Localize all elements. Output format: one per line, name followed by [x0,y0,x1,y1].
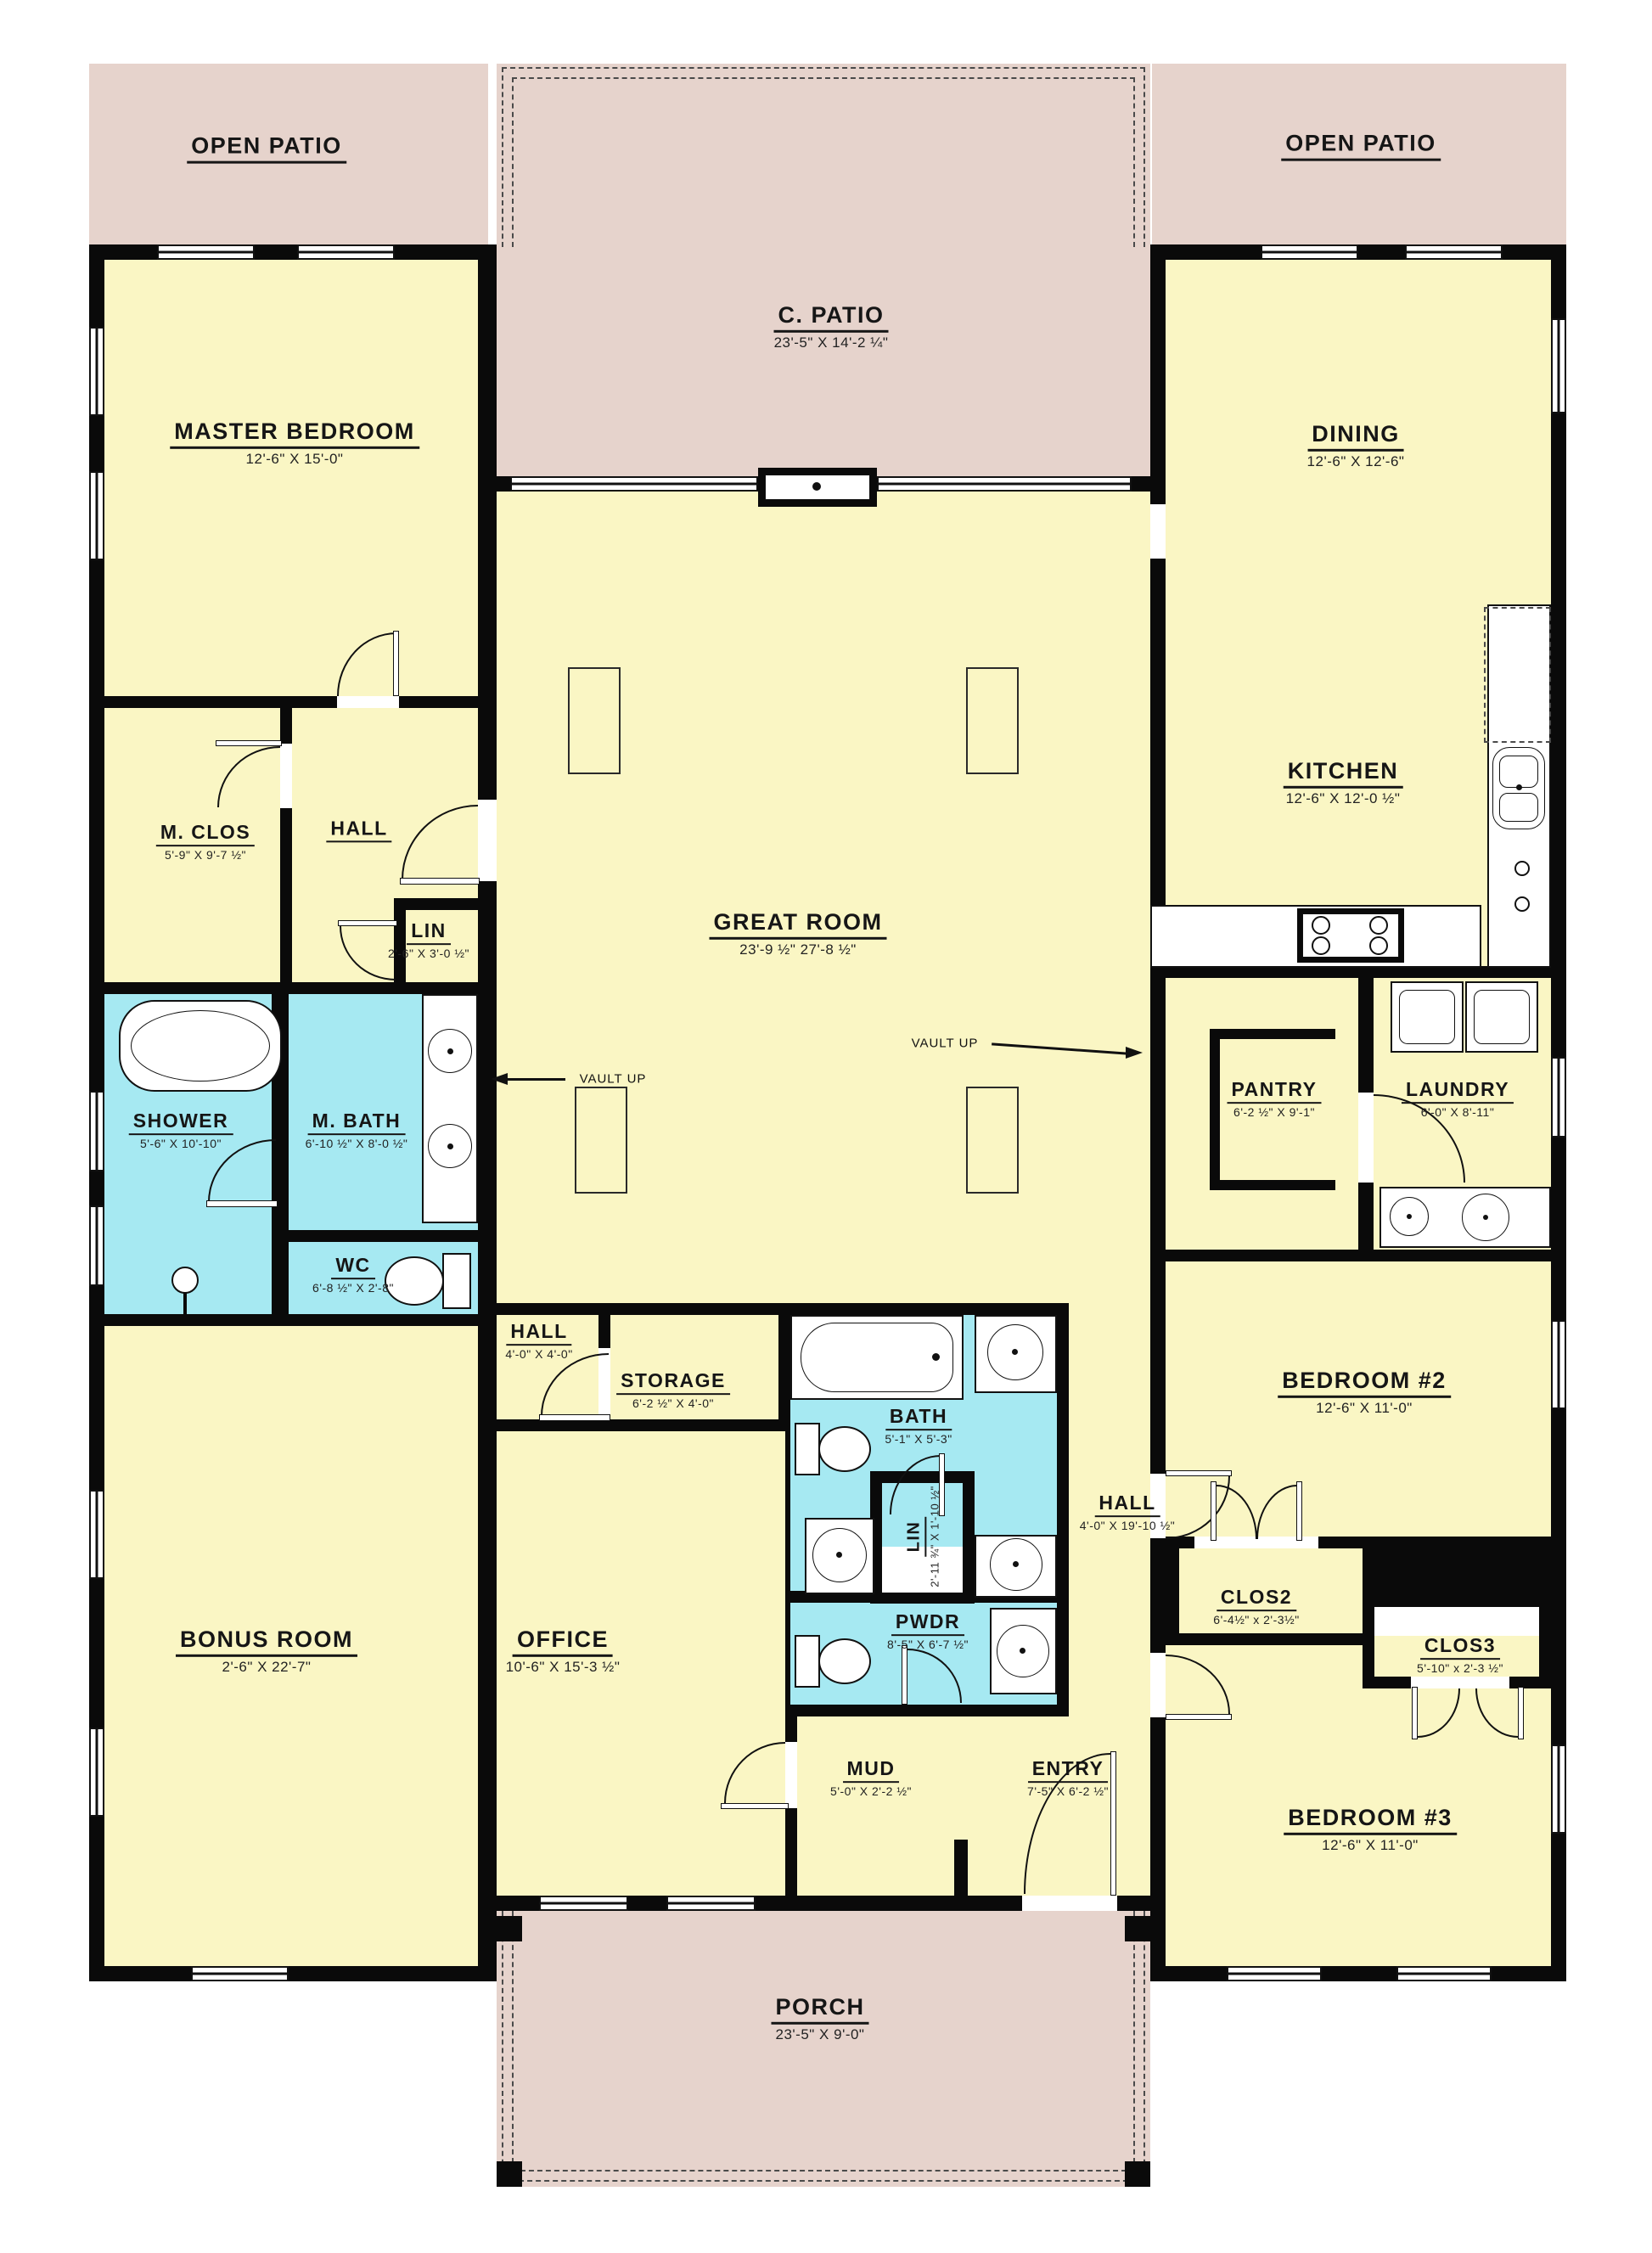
room-name: SHOWER [129,1110,233,1135]
drain-icon [447,1048,453,1054]
powder-toilet-bowl [818,1638,871,1684]
room-label-master-bedroom: MASTER BEDROOM 12'-6" X 15'-0" [170,419,419,467]
window [191,1966,289,1981]
room-label-clos3: CLOS3 5'-10" x 2'-3 ½" [1417,1635,1503,1676]
room-name: M. CLOS [156,822,255,846]
kitchen-sink-basin [1499,756,1538,788]
room-dims: 2'-6" X 3'-0 ½" [388,947,469,960]
room-dims: 5'-0" X 2'-2 ½" [830,1785,912,1798]
office-door-opening [785,1742,797,1808]
powder-toilet-tank [795,1635,820,1688]
burner-icon [1369,936,1388,955]
faucet-icon [1516,784,1522,790]
room-name: C. PATIO [774,303,889,333]
kitchen-upper-cabinet-dashed [1484,607,1551,743]
door-leaf [400,878,480,885]
room-label-bonus-room: BONUS ROOM 2'-6" X 22'-7" [176,1627,357,1675]
door-leaf [902,1645,907,1705]
room-dims: 4'-0" X 4'-0" [505,1348,572,1361]
door-leaf [1166,1714,1232,1720]
room-label-open-patio-left: OPEN PATIO [187,134,346,164]
bath-toilet-tank [795,1423,820,1475]
room-label-mud: MUD 5'-0" X 2'-2 ½" [830,1758,912,1799]
pantry-shelf [1210,1029,1220,1190]
room-label-storage: STORAGE 6'-2 ½" X 4'-0" [616,1370,730,1411]
room-name: CLOS3 [1420,1635,1500,1660]
room-label-bath: BATH 5'-1" X 5'-3" [885,1406,952,1447]
vault-up-left-label: VAULT UP [580,1072,647,1087]
room-dims: 23'-9 ½" 27'-8 ½" [710,942,887,958]
room-name: OPEN PATIO [187,134,346,164]
window [89,327,104,416]
door-leaf [1166,1470,1232,1476]
window [1551,1320,1566,1409]
room-name: MASTER BEDROOM [170,419,419,449]
room-name: LIN [904,1517,926,1557]
room-dims: 12'-6" X 15'-0" [170,452,419,468]
room-label-pwdr: PWDR 8'-5" X 6'-7 ½" [887,1611,969,1652]
room-label-dining: DINING 12'-6" X 12'-6" [1307,422,1405,469]
room-label-m-bath: M. BATH 6'-10 ½" X 8'-0 ½" [306,1110,408,1151]
window [89,1091,104,1171]
room-label-open-patio-right: OPEN PATIO [1281,132,1441,161]
porch-post [1125,1916,1150,1941]
room-dims: 5'-9" X 9'-7 ½" [156,849,255,862]
room-label-c-patio: C. PATIO 23'-5" X 14'-2 ¼" [774,303,889,351]
door-leaf [1211,1481,1217,1541]
room-name: LAUNDRY [1402,1079,1514,1104]
window [1227,1966,1322,1981]
room-label-porch: PORCH 23'-5" X 9'-0" [771,1995,868,2042]
ceiling-feature [568,667,621,774]
room-dims: 8'-5" X 6'-7 ½" [887,1638,969,1651]
room-label-hall-master: HALL [326,817,391,842]
window [1261,244,1358,260]
porch-post [497,1916,522,1941]
room-label-bedroom2: BEDROOM #2 12'-6" X 11'-0" [1278,1368,1451,1416]
room-name: PORCH [771,1995,868,2025]
mud-entry-divider-wall [954,1840,968,1896]
room-name: BONUS ROOM [176,1627,357,1657]
room-label-clos2: CLOS2 6'-4½" x 2'-3½" [1213,1587,1299,1627]
room-name: GREAT ROOM [710,910,887,940]
room-dims: 23'-5" X 14'-2 ¼" [774,335,889,351]
door-leaf [539,1414,610,1421]
room-name: KITCHEN [1284,759,1403,789]
drain-icon [447,1143,453,1149]
door-leaf [721,1803,789,1809]
room-name: HALL [326,817,391,842]
room-label-pantry: PANTRY 6'-2 ½" X 9'-1" [1228,1079,1322,1120]
counter-knob-icon [1514,861,1530,876]
counter-knob-icon [1514,896,1530,912]
room-label-laundry: LAUNDRY 6'-0" X 8'-11" [1402,1079,1514,1120]
ceiling-feature [575,1087,627,1194]
room-name: BEDROOM #2 [1278,1368,1451,1398]
window [89,1490,104,1579]
room-dims: 6'-2 ½" X 9'-1" [1228,1106,1322,1119]
room-label-bedroom3: BEDROOM #3 12'-6" X 11'-0" [1284,1806,1457,1853]
door-leaf [1412,1687,1418,1739]
room-dims: 6'-4½" x 2'-3½" [1213,1614,1299,1627]
room-dims: 5'-1" X 5'-3" [885,1433,952,1446]
laundry-door-opening [1358,1093,1374,1183]
room-dims: 12'-6" X 12'-6" [1307,454,1405,470]
porch-post [497,2161,522,2187]
room-dims: 6'-10 ½" X 8'-0 ½" [306,1138,408,1150]
clos3-door-opening [1411,1677,1509,1688]
kitchen-sink-basin [1499,793,1538,822]
shower-arm-icon [183,1292,187,1314]
room-name: ENTRY [1028,1758,1109,1783]
vault-up-left-arrowhead [491,1073,508,1085]
tub-basin [131,1010,270,1082]
pantry-shelf [1210,1180,1335,1190]
drain-icon [1012,1349,1018,1355]
window [666,1896,756,1911]
door-leaf [1518,1687,1524,1739]
covered-patio-dashed-outline-inner [512,77,1135,247]
room-label-kitchen: KITCHEN 12'-6" X 12'-0 ½" [1284,759,1403,806]
room-dims: 12'-6" X 11'-0" [1278,1401,1451,1417]
room-label-great-room: GREAT ROOM 23'-9 ½" 27'-8 ½" [710,910,887,958]
ceiling-feature [966,667,1019,774]
room-label-hall-right: HALL 4'-0" X 19'-10 ½" [1080,1492,1176,1533]
master-bedroom-area [104,260,478,696]
front-door-leaf [1110,1751,1116,1896]
room-label-lin-hall: LIN 2'-11 ¾" X 1'-10 ½" [904,1486,941,1587]
front-door-opening [1022,1896,1117,1911]
room-name: LIN [407,920,451,945]
window [1396,1966,1492,1981]
room-name: OFFICE [513,1627,613,1657]
room-dims: 5'-10" x 2'-3 ½" [1417,1662,1503,1675]
window [539,1896,628,1911]
shower-head-icon [171,1267,199,1294]
wc-toilet-tank [442,1253,471,1309]
vault-up-left-arrow-line [508,1078,565,1081]
floor-plan: VAULT UP VAULT UP OPEN PATIO OPEN PATIO … [0,0,1652,2253]
room-dims: 6'-0" X 8'-11" [1402,1106,1514,1119]
window [89,1205,104,1286]
burner-icon [1312,936,1330,955]
room-dims: 4'-0" X 19'-10 ½" [1080,1520,1176,1532]
ceiling-feature [966,1087,1019,1194]
room-name: M. BATH [308,1110,406,1135]
drain-icon [836,1552,842,1558]
room-name: CLOS2 [1217,1587,1296,1611]
window [1551,1057,1566,1138]
door-leaf [206,1200,278,1207]
bedroom3-door-opening [1150,1653,1166,1717]
room-name: STORAGE [616,1370,730,1395]
master-door-opening [337,696,399,708]
vault-up-right-arrowhead [1126,1047,1143,1059]
room-dims: 23'-5" X 9'-0" [771,2027,868,2043]
dryer-door [1474,990,1530,1044]
drain-icon [1020,1648,1025,1654]
bath-toilet-bowl [818,1426,871,1472]
room-dims: 12'-6" X 11'-0" [1284,1838,1457,1854]
drain-icon [1407,1214,1412,1219]
room-name: HALL [506,1321,571,1346]
room-label-m-clos: M. CLOS 5'-9" X 9'-7 ½" [156,822,255,862]
room-dims: 12'-6" X 12'-0 ½" [1284,791,1403,807]
room-label-lin-master: LIN 2'-6" X 3'-0 ½" [388,920,469,961]
sliding-glass-door [510,476,758,492]
drain-icon [932,1353,940,1361]
patio-door-knob-icon [812,482,821,491]
room-name: PANTRY [1228,1079,1322,1104]
window [89,1728,104,1817]
room-dims: 10'-6" X 15'-3 ½" [506,1660,621,1676]
room-dims: 7'-5" X 6'-2 ½" [1027,1785,1109,1798]
window [1551,1745,1566,1834]
room-name: WC [331,1255,374,1279]
master-closet-door-opening [280,744,292,808]
room-label-shower: SHOWER 5'-6" X 10'-10" [129,1110,233,1151]
bath-tub-basin [801,1323,953,1392]
dining-opening [1150,504,1166,559]
room-dims: 6'-2 ½" X 4'-0" [616,1397,730,1410]
room-name: PWDR [891,1611,964,1636]
window [297,244,395,260]
vault-up-right-label: VAULT UP [912,1037,979,1051]
drain-icon [1013,1561,1019,1567]
room-name: OPEN PATIO [1281,132,1441,161]
room-name: BEDROOM #3 [1284,1806,1457,1835]
door-leaf [393,631,399,696]
room-label-office: OFFICE 10'-6" X 15'-3 ½" [506,1627,621,1675]
porch-post [1125,2161,1150,2187]
drain-icon [1483,1215,1488,1220]
room-dims: 2'-11 ¾" X 1'-10 ½" [929,1486,941,1587]
washer-door [1399,990,1455,1044]
room-name: BATH [885,1406,952,1430]
burner-icon [1369,916,1388,935]
window [89,471,104,560]
window [1405,244,1503,260]
room-dims: 2'-6" X 22'-7" [176,1660,357,1676]
window [157,244,255,260]
pantry-shelf [1210,1029,1335,1039]
sliding-glass-door [877,476,1132,492]
room-name: MUD [843,1758,900,1783]
room-dims: 6'-8 ½" X 2'-8" [312,1282,394,1295]
room-label-hall-center: HALL 4'-0" X 4'-0" [505,1321,572,1362]
door-leaf [216,740,282,746]
room-name: HALL [1094,1492,1160,1517]
clos3-shelf [1374,1607,1539,1636]
room-name: DINING [1307,422,1404,452]
hall-greatroom-door-opening [478,800,497,881]
window [1551,318,1566,413]
room-label-entry: ENTRY 7'-5" X 6'-2 ½" [1027,1758,1109,1799]
room-dims: 5'-6" X 10'-10" [129,1138,233,1150]
door-leaf [1296,1481,1302,1541]
room-label-wc: WC 6'-8 ½" X 2'-8" [312,1255,394,1295]
burner-icon [1312,916,1330,935]
